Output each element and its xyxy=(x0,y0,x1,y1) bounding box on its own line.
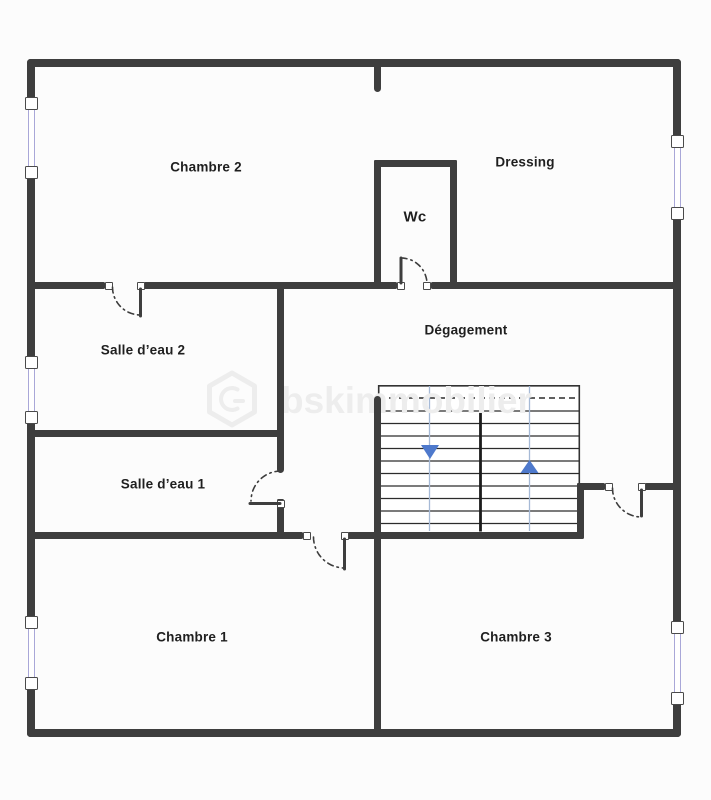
floor-plan: bskimmobilier Chambre 2 Dressing Wc Sall… xyxy=(0,0,711,800)
door-swing-arc xyxy=(113,287,141,315)
room-label-salle-eau-2: Salle d’eau 2 xyxy=(101,343,185,358)
room-label-salle-eau-1: Salle d’eau 1 xyxy=(121,477,205,492)
room-label-wc: Wc xyxy=(404,209,427,226)
room-label-dressing: Dressing xyxy=(495,155,554,170)
door-swing-arc xyxy=(401,258,427,284)
door-swing-arc xyxy=(314,537,345,568)
door-swing-arc xyxy=(613,488,642,517)
room-label-chambre-2: Chambre 2 xyxy=(170,160,242,175)
room-label-chambre-1: Chambre 1 xyxy=(156,630,228,645)
doors-layer xyxy=(0,0,711,800)
room-label-chambre-3: Chambre 3 xyxy=(480,630,552,645)
door-swing-arc xyxy=(251,471,281,501)
room-label-degagement: Dégagement xyxy=(424,323,507,338)
